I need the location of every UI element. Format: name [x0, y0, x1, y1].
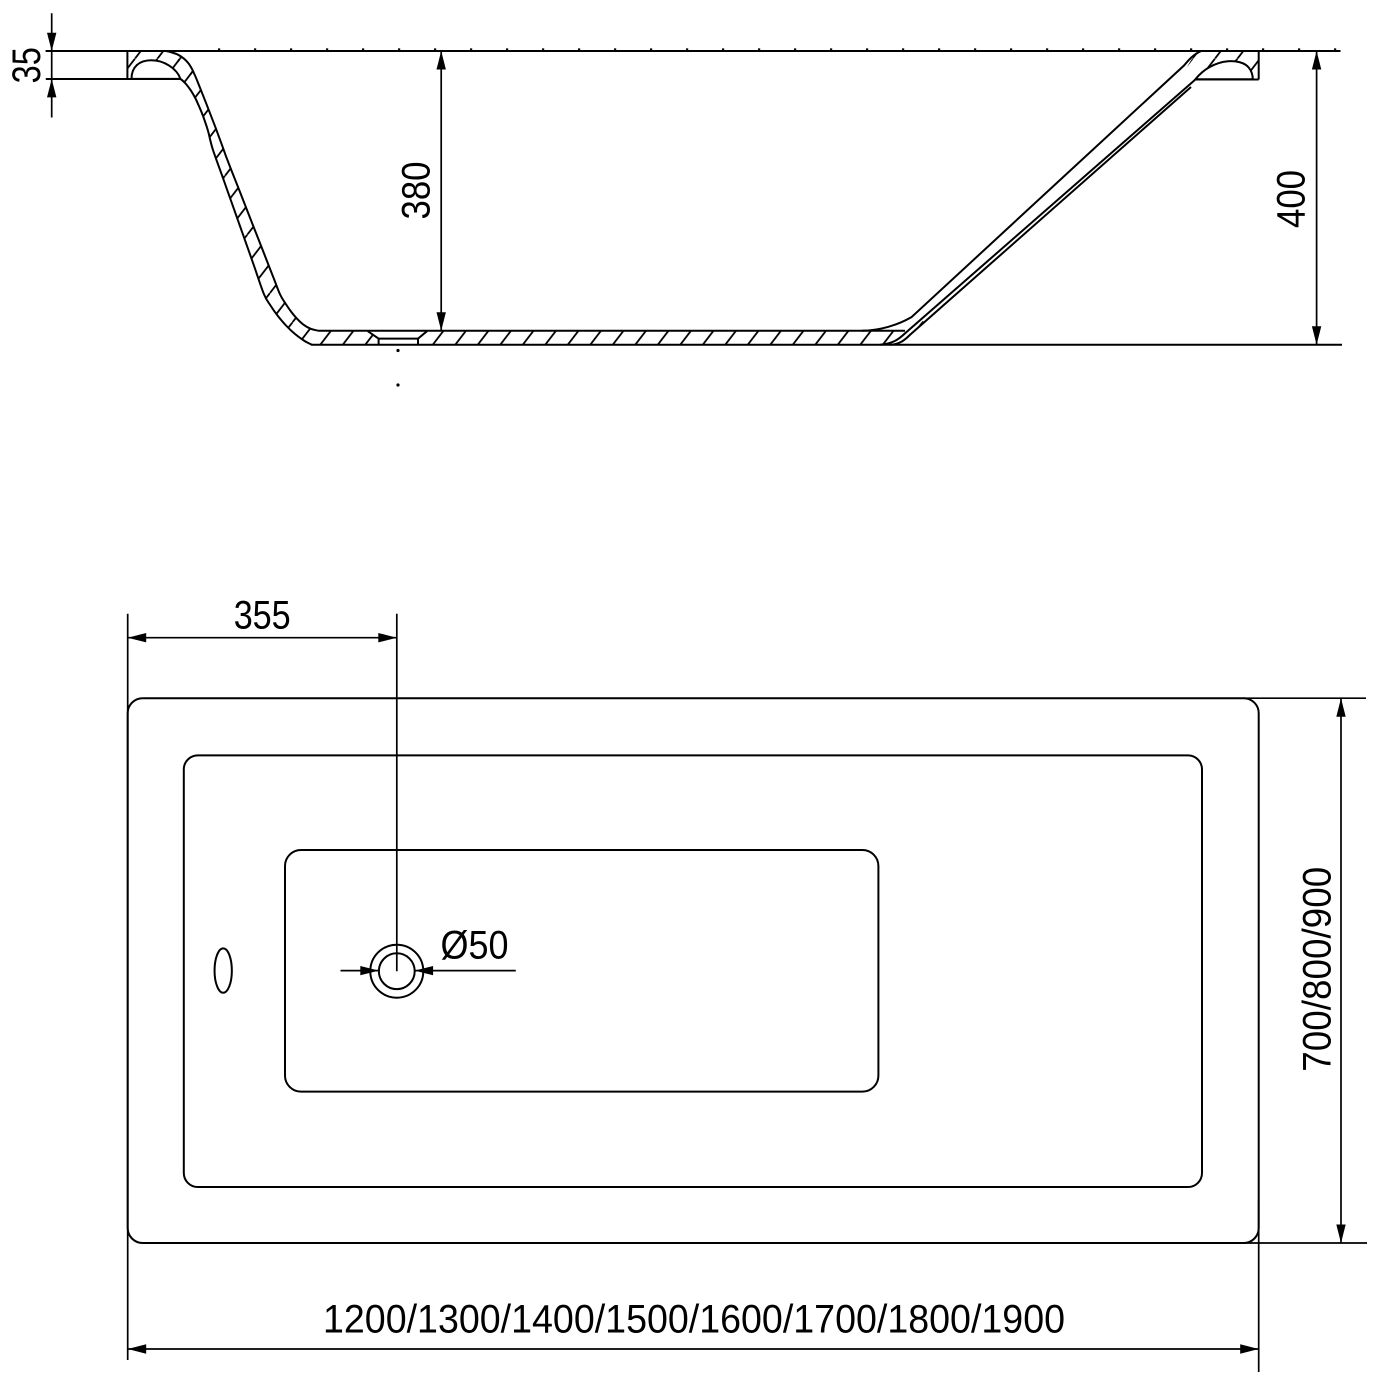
svg-text:700/800/900: 700/800/900 [1295, 867, 1339, 1072]
svg-text:400: 400 [1269, 170, 1313, 228]
svg-text:380: 380 [394, 162, 438, 220]
svg-text:Ø50: Ø50 [441, 923, 509, 967]
svg-text:355: 355 [234, 594, 291, 638]
svg-text:1200/1300/1400/1500/1600/1700/: 1200/1300/1400/1500/1600/1700/1800/1900 [323, 1297, 1065, 1341]
svg-text:35: 35 [5, 47, 49, 83]
